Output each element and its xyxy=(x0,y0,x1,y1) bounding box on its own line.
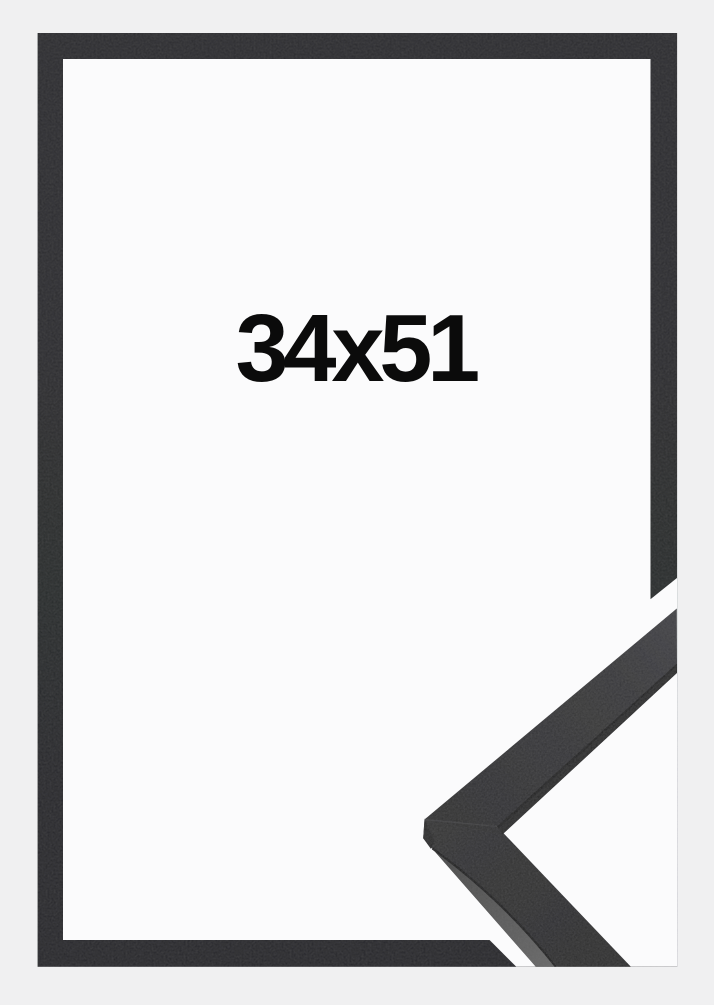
svg-text:34x51: 34x51 xyxy=(236,296,479,402)
